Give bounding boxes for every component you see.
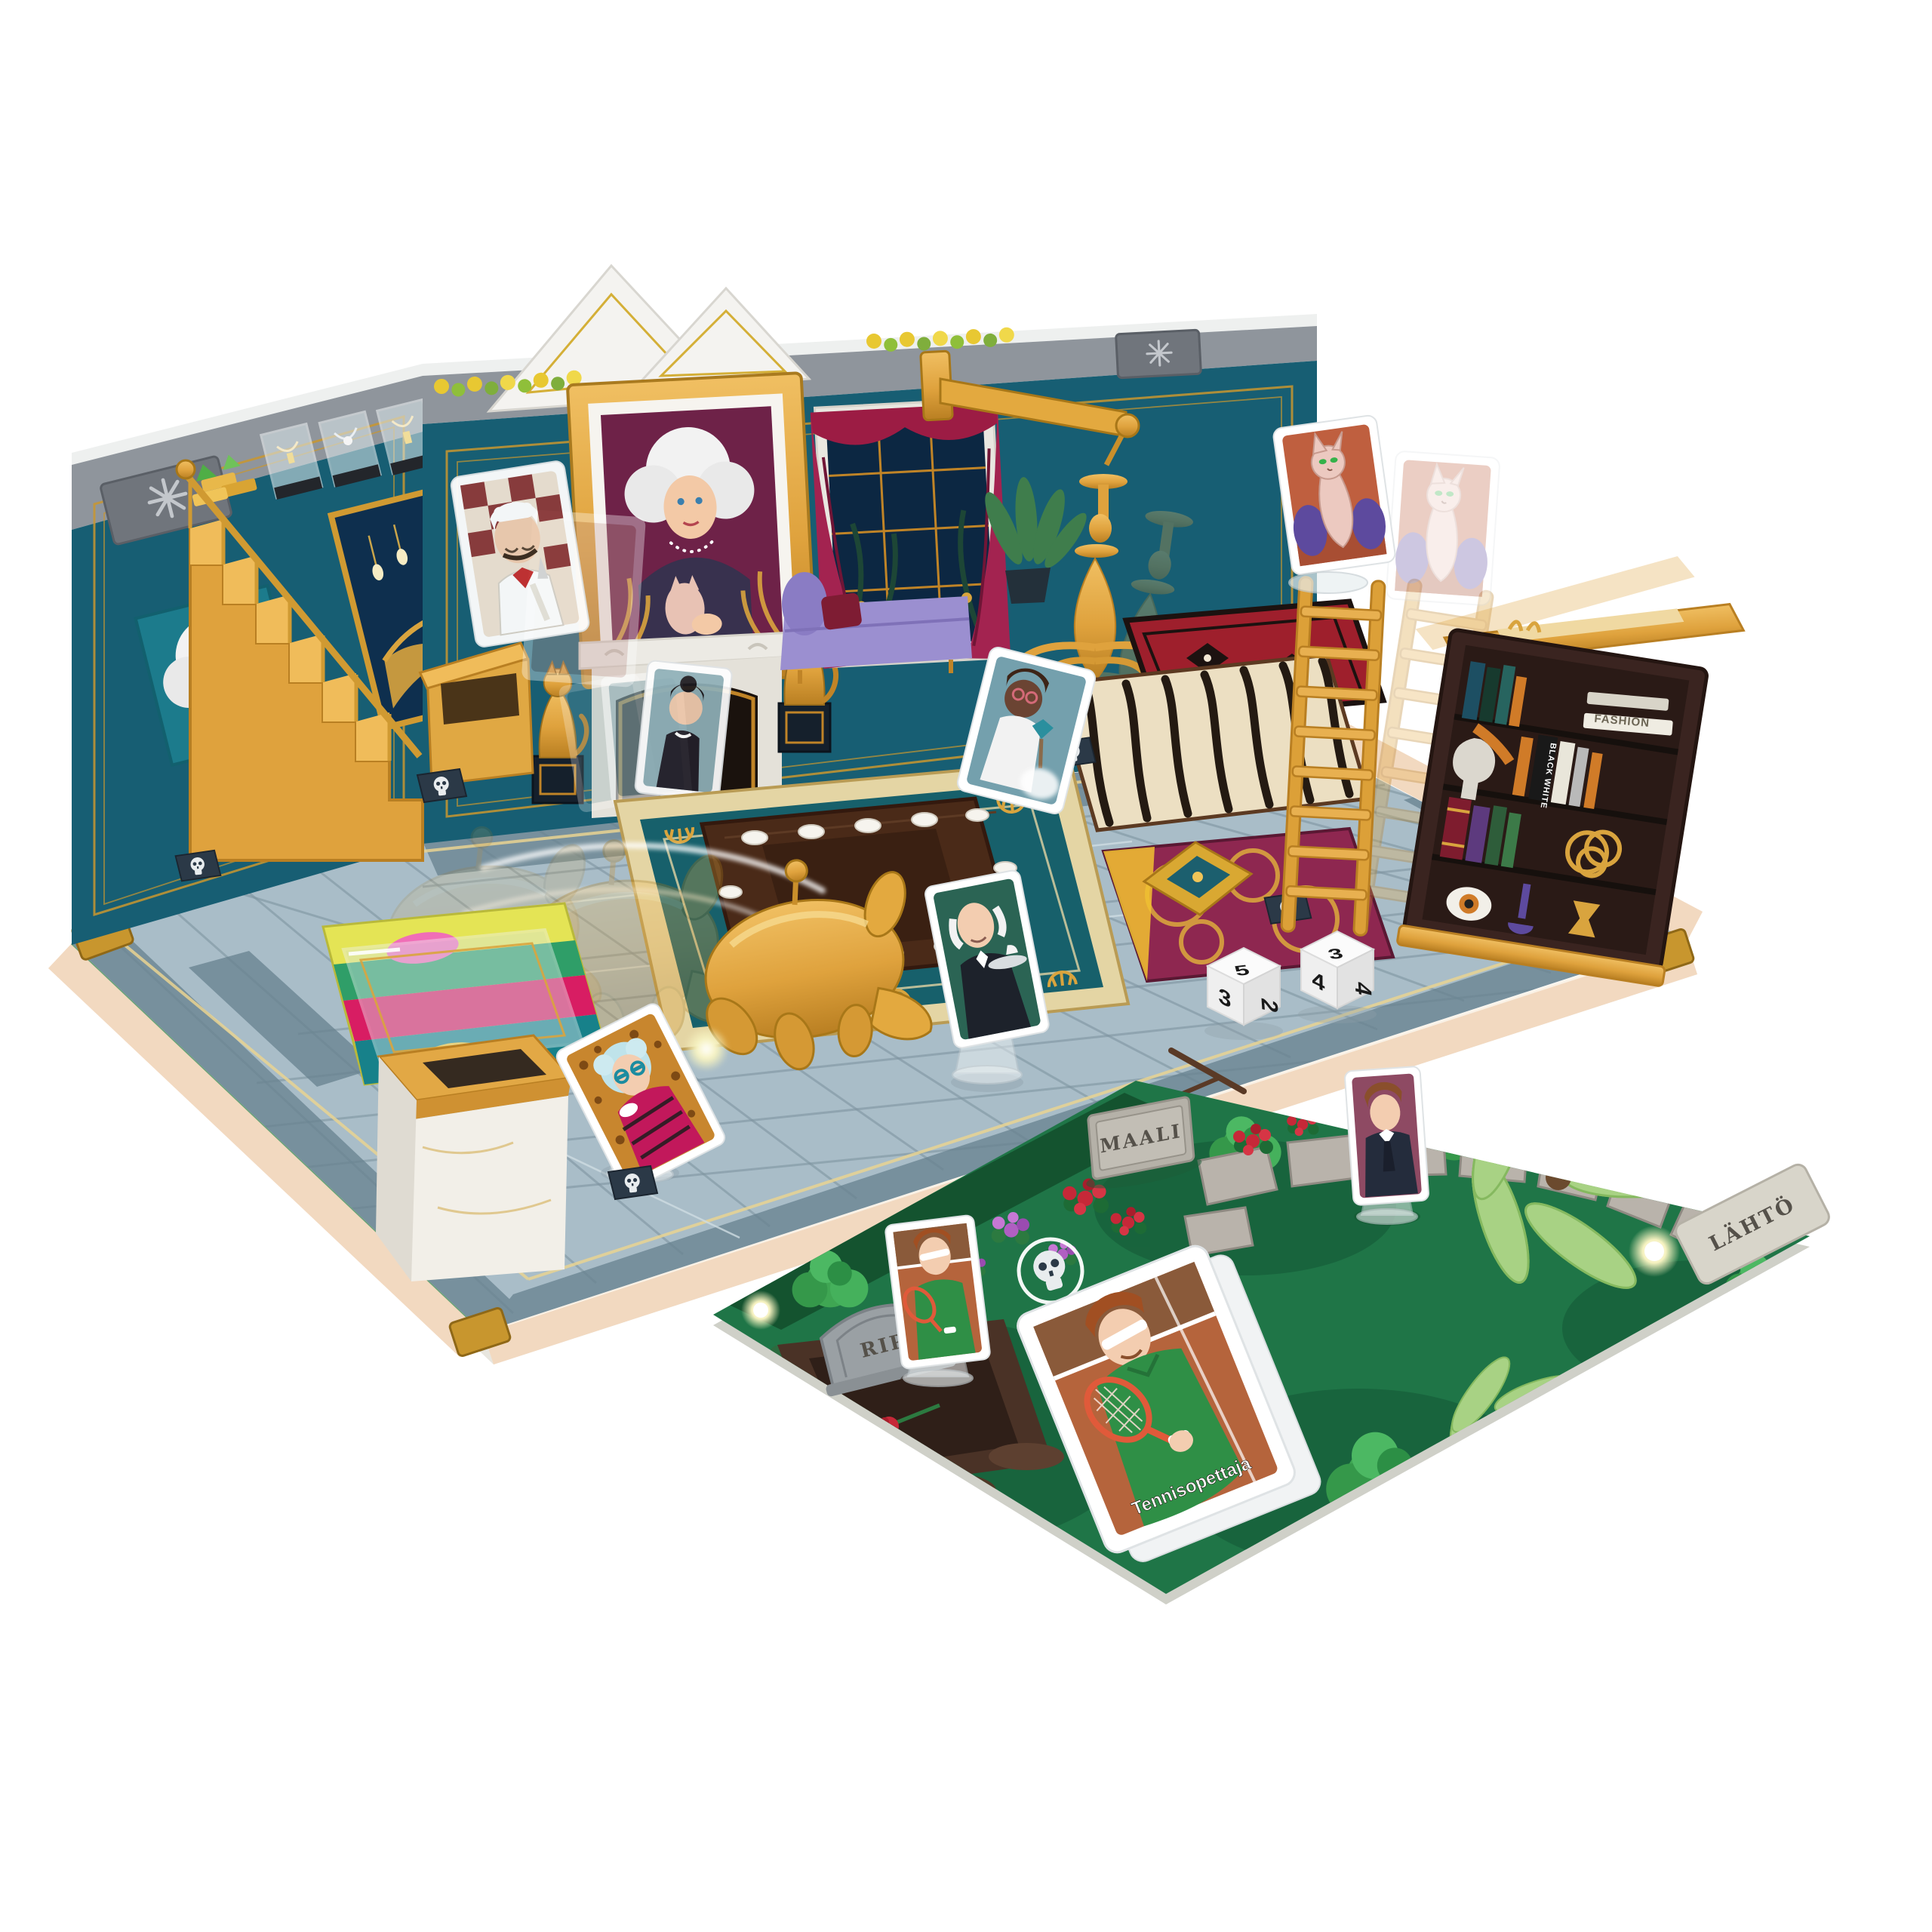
board-game-scene: 5 3 2 3 4 4 FASHION BLACK WHITE [0,0,1932,1932]
vault-door-panel-back [1116,330,1201,378]
marble-pedestal [376,1035,571,1281]
die-1: 5 3 2 [1204,948,1283,1040]
sofa-pillow [820,592,863,631]
zebra-rug [1055,655,1369,830]
cat-card-ghost [1386,451,1500,605]
vault-wheel-icon [1146,340,1172,366]
pedestal-marble-body [411,1096,568,1281]
heir-standee [1344,1066,1429,1226]
newel-finial [177,460,195,478]
floor-spotlight [684,1026,729,1072]
leafy-plant [1640,1438,1767,1569]
cat-card-flying [1272,414,1555,605]
die-2: 3 4 4 [1298,931,1377,1023]
card-stand-base [1289,572,1367,593]
